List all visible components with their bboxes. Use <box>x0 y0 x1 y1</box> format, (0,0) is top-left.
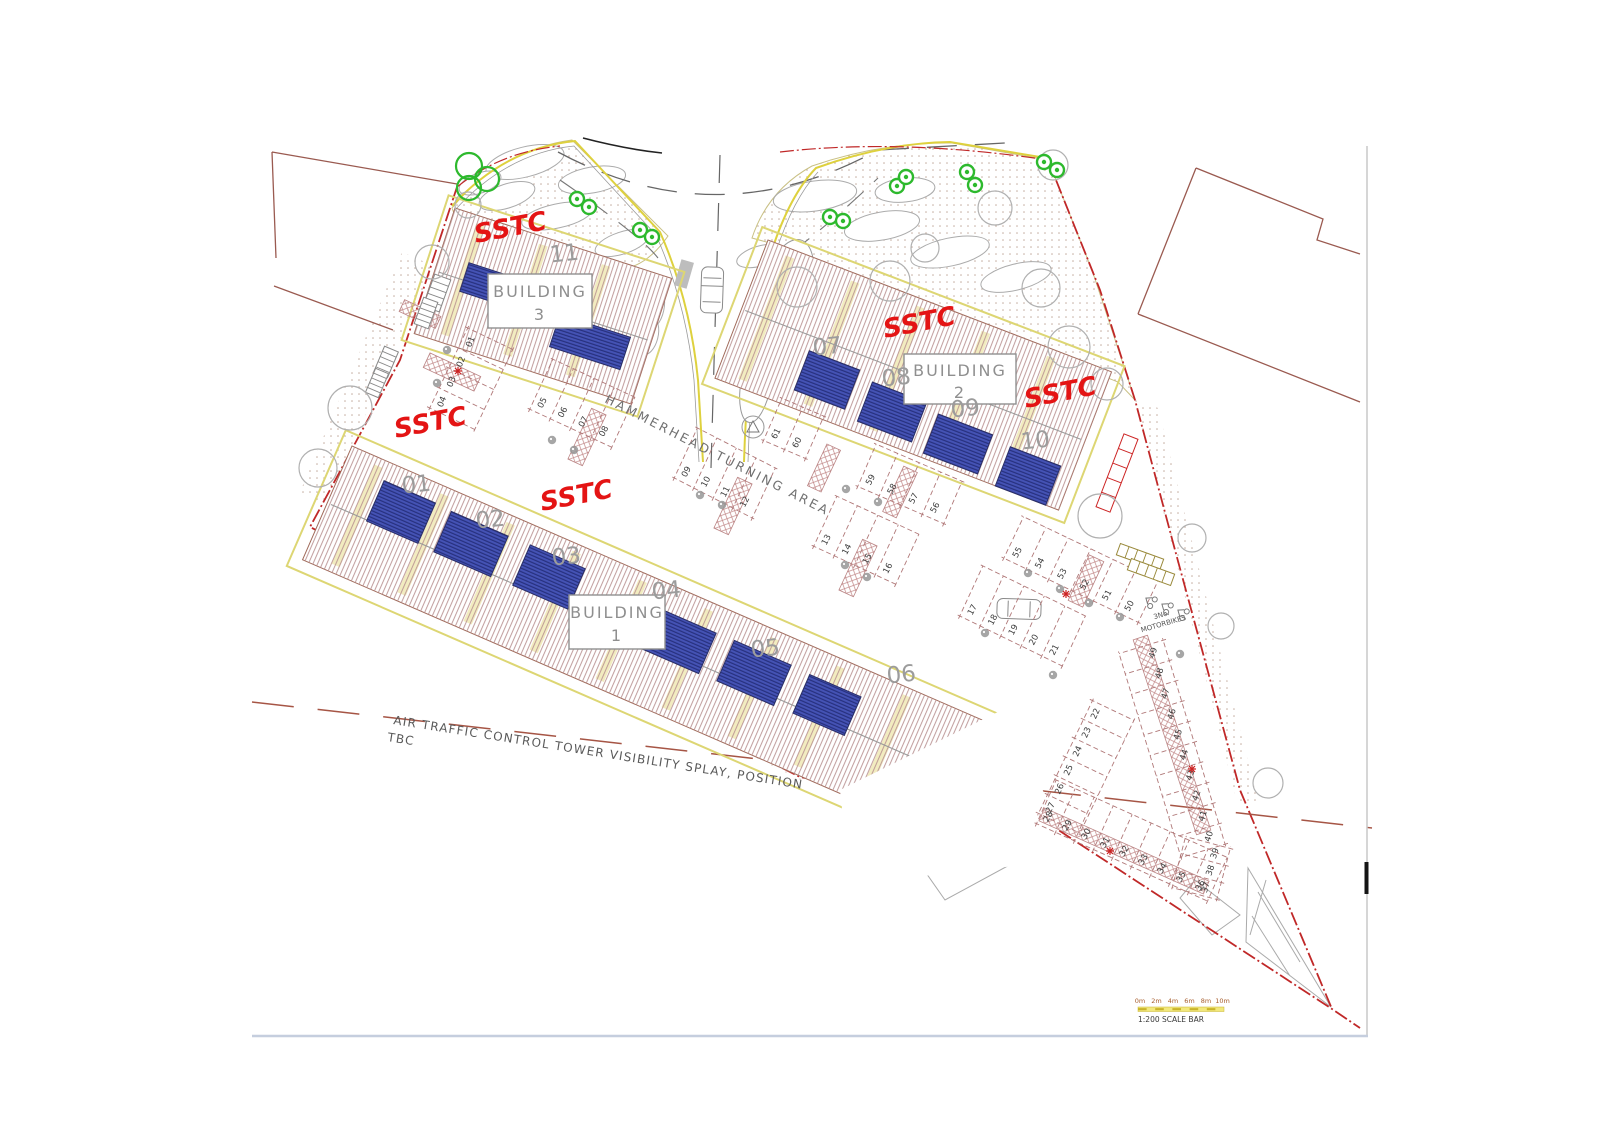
parking-bay-number: 19 <box>1007 623 1021 637</box>
parking-bay-number: 48 <box>1154 667 1167 680</box>
site-plan-drawing: 0102030405060708091011121314151617181920… <box>0 0 1600 1131</box>
parking-bay-number: 47 <box>1160 687 1173 700</box>
parking-bay-number: 09 <box>680 465 694 479</box>
parking-bay-number: 16 <box>881 561 895 575</box>
amenity-icon <box>1024 569 1032 577</box>
amenity-icon <box>718 501 726 509</box>
amenity-icon <box>1085 599 1093 607</box>
building-1-number: 1 <box>611 626 623 645</box>
sstc-label-b1-left: SSTC <box>392 401 470 444</box>
red-asterisk-marker <box>454 367 462 375</box>
crosshatch-strip <box>568 408 606 466</box>
crosshatch-strip <box>807 444 840 492</box>
parking-bay-number: 53 <box>1056 567 1070 581</box>
amenity-icon <box>696 491 704 499</box>
amenity-icon <box>874 498 882 506</box>
red-asterisk-marker <box>1106 847 1114 855</box>
unit-04: 04 <box>650 577 682 606</box>
building-1-name: BUILDING <box>570 603 664 622</box>
parking-bay-number: 61 <box>770 427 784 441</box>
amenity-icon <box>842 485 850 493</box>
parking-bay-number: 56 <box>929 501 943 515</box>
parking-bay-number: 42 <box>1191 789 1204 802</box>
amenity-icon <box>570 446 578 454</box>
parking-bay-number: 21 <box>1048 643 1062 657</box>
parking-bay-number: 60 <box>791 436 805 450</box>
parking-bay-number: 45 <box>1172 728 1185 741</box>
parking-bay-number: 22 <box>1089 707 1103 721</box>
unit-10: 10 <box>1019 427 1051 456</box>
parking-bay-number: 24 <box>1071 745 1085 759</box>
parking-bay-number: 57 <box>907 492 921 506</box>
parking-bay-number: 46 <box>1166 707 1179 720</box>
amenity-icon <box>548 436 556 444</box>
scale-tick-4: 8m <box>1201 997 1211 1005</box>
amenity-icon <box>841 561 849 569</box>
parking-bay-number: 51 <box>1101 588 1115 602</box>
scale-bar: 0m 2m 4m 6m 8m 10m 1:200 SCALE BAR <box>1135 997 1230 1024</box>
unit-06: 06 <box>885 661 917 690</box>
parking-bay-number: 40 <box>1203 830 1216 843</box>
parking-bay-number: 06 <box>556 405 570 419</box>
amenity-icon <box>981 629 989 637</box>
site-plan-canvas: 0102030405060708091011121314151617181920… <box>0 0 1600 1131</box>
unit-08: 08 <box>880 364 912 393</box>
amenity-icon <box>1116 613 1124 621</box>
amenity-icon <box>1056 585 1064 593</box>
parking-bay-number: 44 <box>1178 748 1191 761</box>
parking-bay-number: 38 <box>1204 864 1217 877</box>
amenity-icon <box>1049 671 1057 679</box>
store-canopy <box>1096 434 1138 512</box>
tree-icon <box>1253 768 1283 798</box>
red-asterisk-marker <box>1062 590 1070 598</box>
scale-tick-1: 2m <box>1151 997 1161 1005</box>
unit-03: 03 <box>550 543 582 572</box>
unit-11: 11 <box>548 240 580 269</box>
parking-bay-number: 20 <box>1027 633 1041 647</box>
unit-09: 09 <box>949 395 981 424</box>
amenity-icon <box>863 573 871 581</box>
scale-tick-0: 0m <box>1135 997 1145 1005</box>
parking-bay-number: 55 <box>1011 546 1025 560</box>
parking-bay-number: 49 <box>1147 646 1160 659</box>
parking-bay-number: 59 <box>864 473 878 487</box>
building-3-name: BUILDING <box>493 282 587 301</box>
parking-bay-number: 50 <box>1123 599 1137 613</box>
unit-05: 05 <box>749 635 781 664</box>
building-2-name: BUILDING <box>913 361 1007 380</box>
sstc-label-b1-mid: SSTC <box>538 474 616 517</box>
scale-tick-2: 4m <box>1168 997 1178 1005</box>
parking-bay-number: 25 <box>1062 763 1076 777</box>
building-3-number: 3 <box>534 305 546 324</box>
parking-bay-number: 10 <box>699 475 713 489</box>
amenity-icon <box>1176 650 1184 658</box>
parking-bay-number: 13 <box>820 533 834 547</box>
parking-bay-number: 23 <box>1080 726 1094 740</box>
parking-bay-number: 14 <box>840 542 854 556</box>
amenity-icon <box>433 379 441 387</box>
parking-bay-number: 05 <box>536 396 550 410</box>
scale-tick-5: 10m <box>1215 997 1230 1005</box>
parking-bay-number: 17 <box>966 603 980 617</box>
parking-bay-number: 54 <box>1033 556 1047 570</box>
atc-note-line2: TBC <box>386 730 416 748</box>
unit-01: 01 <box>400 471 432 500</box>
unit-02: 02 <box>474 506 506 535</box>
amenity-icon <box>443 346 451 354</box>
unit-07: 07 <box>811 333 843 362</box>
scale-bar-label: 1:200 SCALE BAR <box>1138 1015 1204 1024</box>
scale-tick-3: 6m <box>1184 997 1194 1005</box>
red-asterisk-marker <box>1188 765 1196 773</box>
